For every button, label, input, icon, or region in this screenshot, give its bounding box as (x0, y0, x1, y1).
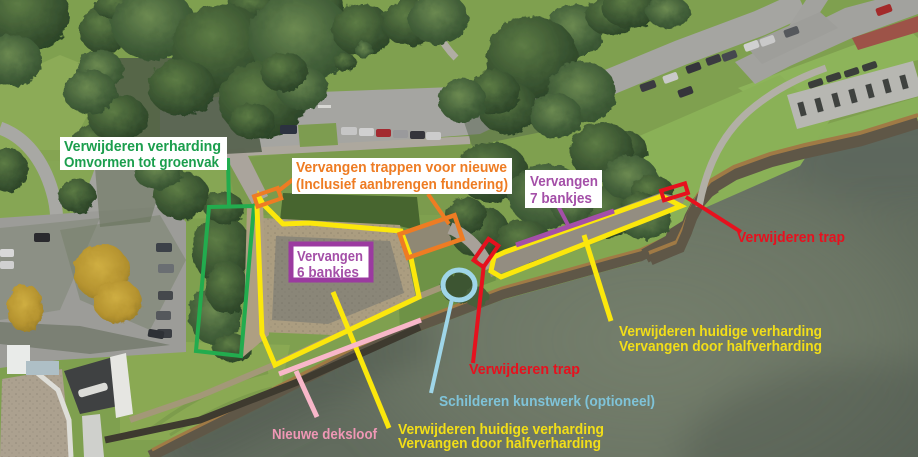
svg-text:Omvormen tot groenvak: Omvormen tot groenvak (64, 154, 220, 171)
svg-text:Vervangen trappen voor nieuwe: Vervangen trappen voor nieuwe (296, 159, 507, 176)
svg-text:Nieuwe deksloof: Nieuwe deksloof (272, 426, 378, 443)
svg-text:7 bankjes: 7 bankjes (530, 190, 592, 207)
svg-text:Verwijderen trap: Verwijderen trap (737, 229, 845, 246)
svg-text:Schilderen kunstwerk (optionee: Schilderen kunstwerk (optioneel) (439, 393, 655, 410)
svg-text:Verwijderen trap: Verwijderen trap (469, 361, 580, 378)
svg-text:Vervangen door halfverharding: Vervangen door halfverharding (619, 338, 822, 355)
svg-text:Vervangen: Vervangen (297, 248, 363, 265)
svg-text:6 bankjes: 6 bankjes (297, 264, 359, 281)
svg-text:Vervangen: Vervangen (530, 173, 598, 190)
svg-text:Vervangen door halfverharding: Vervangen door halfverharding (398, 435, 601, 452)
svg-text:(Inclusief aanbrengen funderin: (Inclusief aanbrengen fundering) (296, 176, 508, 193)
svg-text:Verwijderen verharding: Verwijderen verharding (64, 138, 221, 155)
